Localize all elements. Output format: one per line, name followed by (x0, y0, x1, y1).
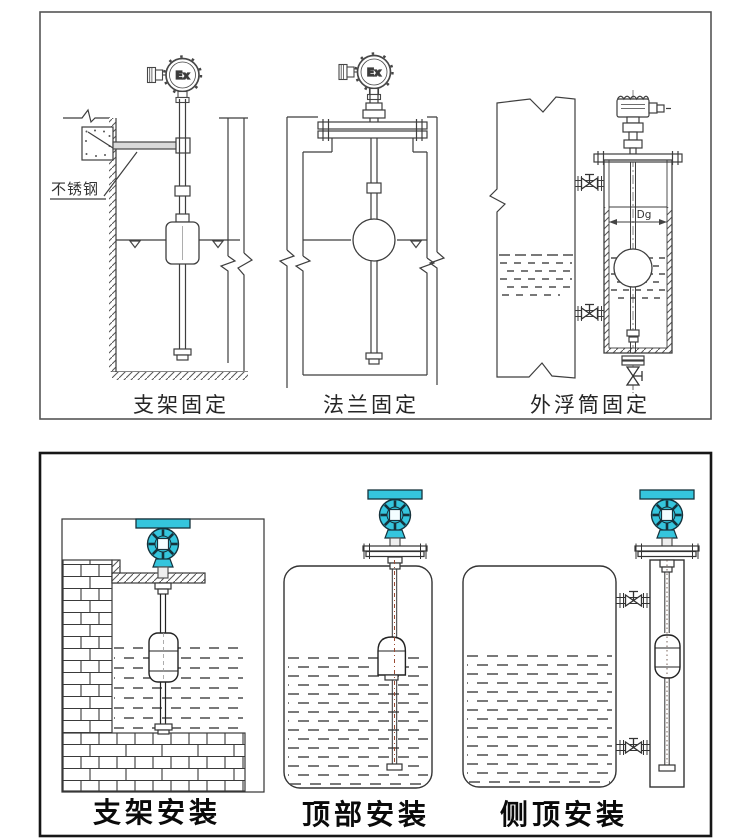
float-cylinder (378, 637, 405, 675)
rod-end-weight (387, 764, 402, 770)
brick-floor (63, 733, 245, 791)
float-ball (353, 219, 395, 261)
rod-end-weight (659, 765, 675, 771)
chamber-diameter-label: Dg (637, 209, 652, 221)
stainless-steel-label: 不锈钢 (51, 180, 99, 198)
mounting-flange-plate (318, 122, 427, 129)
label-external-chamber-fixed: 外浮筒固定 (530, 393, 650, 417)
chamber-top-flange (594, 154, 682, 162)
brick-wall (63, 560, 112, 733)
ex-marking: Ex (367, 66, 382, 79)
mounting-flange (635, 544, 699, 560)
rod-coupler (155, 583, 171, 589)
tank-flange-plate (318, 131, 427, 138)
float-collar (176, 214, 189, 222)
rod-coupler (627, 330, 639, 336)
ex-marking: Ex (175, 69, 190, 82)
rod-end-weight (155, 724, 172, 730)
label-side-top-install: 侧顶安装 (500, 798, 628, 831)
rod-coupler (367, 183, 381, 193)
panel-bottom: 支架安装 (40, 453, 711, 836)
float-ball (614, 249, 652, 287)
ground-hatching (112, 372, 248, 380)
arm-clamp (176, 138, 190, 153)
installation-diagram-sheet: Ex 不锈钢 支架固定 Ex (0, 0, 750, 840)
panel-top: Ex 不锈钢 支架固定 Ex (40, 12, 711, 419)
label-bracket-install: 支架安装 (93, 796, 221, 829)
rod-end-weight (174, 349, 191, 355)
label-top-install: 顶部安装 (302, 798, 430, 831)
label-bracket-fixed: 支架固定 (133, 393, 229, 417)
support-arm (113, 142, 179, 149)
label-flange-fixed: 法兰固定 (323, 393, 419, 417)
rod-end-weight (366, 353, 382, 359)
diagram-canvas: Ex 不锈钢 支架固定 Ex (0, 0, 750, 840)
float-cylinder (655, 635, 680, 678)
rod-coupler (175, 186, 190, 196)
